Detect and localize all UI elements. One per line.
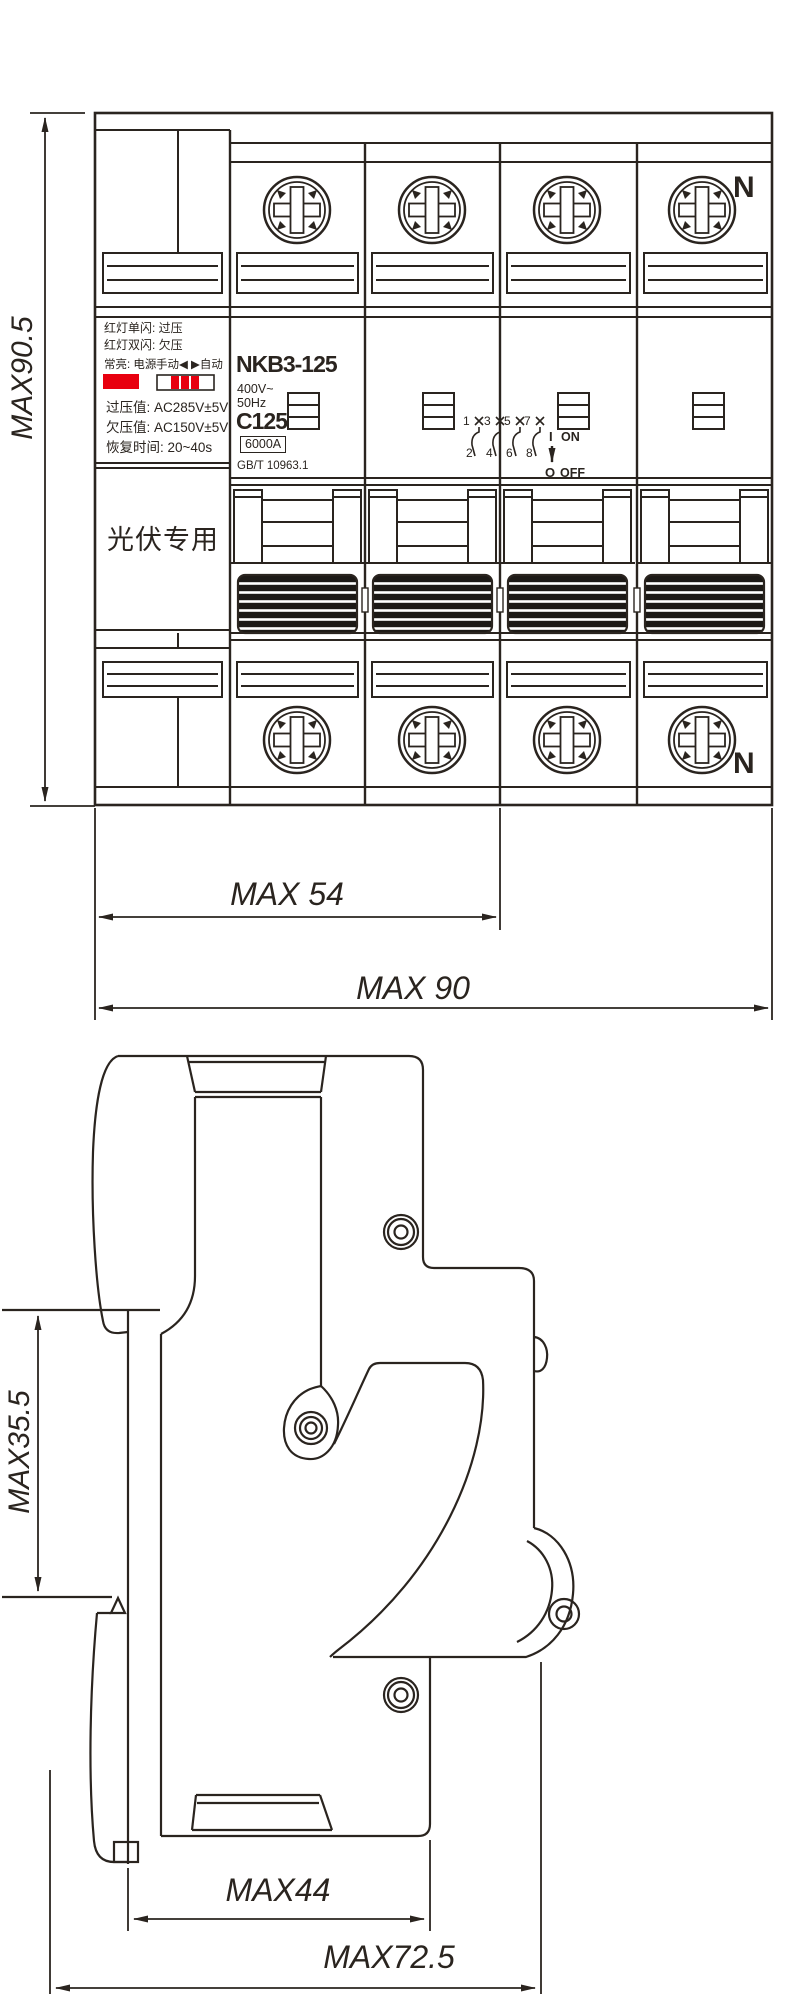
dimension-rail-height: MAX35.5: [5, 1390, 35, 1513]
recovery-time: 恢复时间: 20~40s: [106, 441, 212, 455]
front-view-drawing: [95, 113, 772, 805]
on-label: ON: [561, 431, 580, 444]
application-label: 光伏专用: [107, 527, 219, 554]
dimension-depth-partial: MAX44: [226, 1874, 331, 1906]
toggle-handle-side[interactable]: [187, 1056, 326, 1097]
terminal-number: 2: [466, 447, 473, 459]
terminal-number: 6: [506, 447, 513, 459]
overvoltage-value: 过压值: AC285V±5V: [106, 401, 228, 415]
led-indicator-icon: [103, 374, 214, 390]
rated-voltage: 400V~: [237, 383, 274, 396]
din-clip[interactable]: [114, 1842, 138, 1862]
breaking-capacity: 6000A: [240, 436, 286, 453]
neutral-label-top: N: [733, 173, 755, 203]
model-number: NKB3-125: [236, 353, 337, 376]
dimension-lines-front: [30, 113, 772, 1020]
terminal-number: 4: [486, 447, 493, 459]
rivet-icon: [384, 1215, 418, 1712]
off-label: OFF: [560, 467, 585, 480]
led-single-flash-label: 红灯单闪: 过压: [104, 322, 183, 334]
manual-auto-label: 手动◀ ▶自动: [156, 360, 223, 372]
terminal-number: 1: [463, 415, 470, 427]
neutral-label-bottom: N: [733, 749, 755, 779]
terminal-number: 8: [526, 447, 533, 459]
side-view-drawing: [2, 1056, 579, 1864]
dimension-depth-total: MAX72.5: [323, 1941, 455, 1973]
standard-number: GB/T 10963.1: [237, 461, 308, 473]
terminal-number: 5: [504, 415, 511, 427]
on-symbol: I: [549, 430, 553, 443]
led-steady-label: 常亮: 电源: [104, 360, 156, 372]
led-double-flash-label: 红灯双闪: 欠压: [104, 339, 183, 351]
dimension-width-partial: MAX 54: [230, 878, 344, 910]
terminal-clamp: [103, 662, 767, 697]
terminal-number: 7: [524, 415, 531, 427]
terminal-number: 3: [484, 415, 491, 427]
dimension-width-total: MAX 90: [356, 972, 470, 1004]
terminal-clamp: [103, 253, 767, 293]
technical-drawing-page: N N 红灯单闪: 过压 红灯双闪: 欠压 常亮: 电源 手动◀ ▶自动 过压值…: [0, 0, 790, 2000]
curve-rating: C125: [236, 410, 287, 433]
dimension-front-height: MAX90.5: [8, 316, 38, 439]
undervoltage-value: 欠压值: AC150V±5V: [106, 421, 228, 435]
off-symbol: O: [545, 466, 555, 479]
